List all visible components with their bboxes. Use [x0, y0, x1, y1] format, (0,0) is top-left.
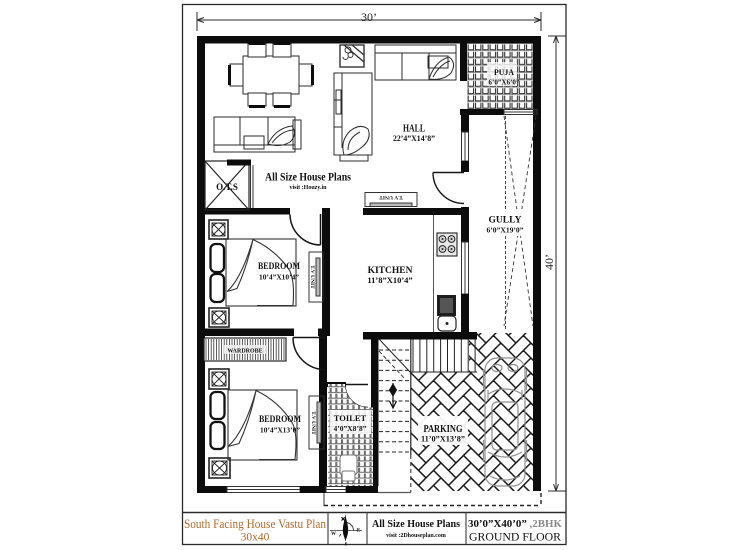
- svg-text:South Facing House Vastu Plan: South Facing House Vastu Plan: [184, 517, 327, 531]
- svg-text:22’4”X14’8”: 22’4”X14’8”: [393, 134, 435, 143]
- svg-text:6’0”X19’0”: 6’0”X19’0”: [487, 226, 524, 235]
- svg-text:40’: 40’: [542, 254, 556, 270]
- svg-text:visit :2Dhouseplan.com: visit :2Dhouseplan.com: [386, 533, 446, 539]
- svg-text:T.V UNIT: T.V UNIT: [309, 265, 315, 289]
- svg-text:T.V UNIT: T.V UNIT: [310, 411, 316, 435]
- svg-text:GULLY: GULLY: [489, 215, 523, 225]
- svg-text:10’4”X13’0”: 10’4”X13’0”: [260, 426, 300, 435]
- svg-text:T.V UNIT: T.V UNIT: [379, 194, 403, 200]
- svg-text:All Size House Plans: All Size House Plans: [265, 172, 351, 184]
- svg-text:PARKING: PARKING: [424, 424, 463, 435]
- svg-text:30x40: 30x40: [241, 532, 270, 544]
- svg-text:WARDROBE: WARDROBE: [227, 349, 262, 355]
- svg-text:O.T.S: O.T.S: [216, 182, 238, 192]
- svg-text:4’0”X8’8”: 4’0”X8’8”: [334, 424, 367, 433]
- svg-text:11’8”X10’4”: 11’8”X10’4”: [367, 275, 412, 285]
- svg-text:HALL: HALL: [403, 124, 425, 135]
- svg-text:W: W: [331, 532, 336, 537]
- svg-text:BEDROOM: BEDROOM: [258, 261, 300, 271]
- svg-text:TOILET: TOILET: [334, 413, 367, 423]
- svg-text:S: S: [345, 543, 348, 548]
- svg-text:visit :Houzy.in: visit :Houzy.in: [289, 185, 327, 191]
- svg-text:30’: 30’: [361, 10, 377, 24]
- svg-text:6’0”X6’0”: 6’0”X6’0”: [489, 78, 520, 87]
- svg-text:30’0”X40’0” ,2BHK: 30’0”X40’0” ,2BHK: [468, 518, 562, 530]
- svg-text:11’0”X13’8”: 11’0”X13’8”: [421, 435, 465, 444]
- svg-text:10’4”X10’4”: 10’4”X10’4”: [259, 273, 299, 282]
- svg-text:BEDROOM: BEDROOM: [259, 414, 301, 424]
- svg-text:GROUND FLOOR: GROUND FLOOR: [469, 532, 561, 544]
- svg-text:All Size House Plans: All Size House Plans: [372, 519, 460, 530]
- svg-text:PUJA: PUJA: [494, 67, 515, 77]
